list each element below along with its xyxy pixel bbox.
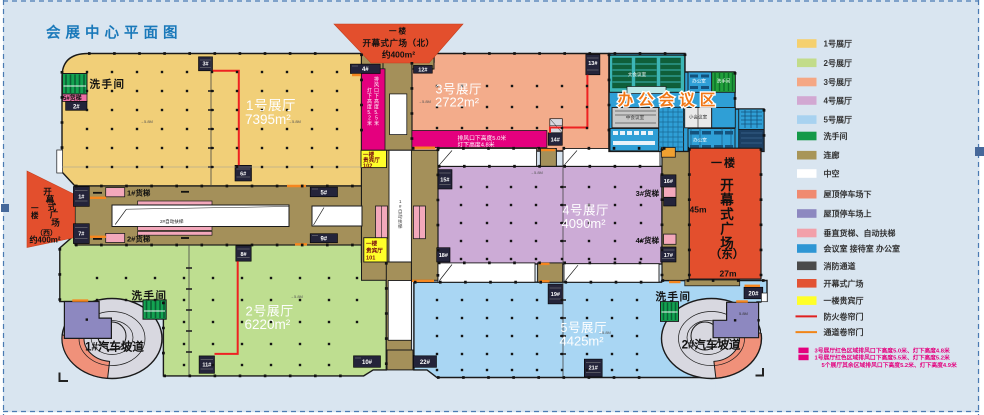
svg-text:→5.8M: →5.8M — [290, 294, 303, 299]
svg-text:4090m²: 4090m² — [562, 216, 607, 231]
svg-text:2722m²: 2722m² — [435, 95, 480, 110]
svg-text:6220m²: 6220m² — [245, 317, 291, 332]
svg-text:洗手间: 洗手间 — [132, 289, 168, 302]
svg-text:一楼贵宾厅: 一楼贵宾厅 — [824, 296, 864, 306]
svg-text:开: 开 — [720, 178, 734, 193]
svg-text:排风口下高度5.0米: 排风口下高度5.0米 — [458, 134, 507, 142]
svg-text:17#: 17# — [664, 253, 673, 259]
svg-text:一楼: 一楼 — [366, 239, 378, 247]
svg-text:12#: 12# — [418, 67, 427, 73]
svg-text:梯: 梯 — [398, 223, 403, 230]
svg-text:开幕式广场（北）: 开幕式广场（北） — [362, 38, 434, 48]
svg-text:13#: 13# — [588, 61, 597, 67]
svg-text:一楼: 一楼 — [389, 26, 408, 36]
svg-text:一楼: 一楼 — [711, 156, 737, 170]
svg-text:9#: 9# — [320, 237, 327, 243]
svg-text:10#: 10# — [362, 360, 373, 366]
svg-text:办公会议区: 办公会议区 — [618, 90, 721, 109]
svg-text:广: 广 — [720, 221, 734, 237]
svg-text:屋顶停车场下: 屋顶停车场下 — [824, 189, 872, 199]
svg-text:2#货梯: 2#货梯 — [127, 234, 151, 244]
svg-text:16#: 16# — [664, 179, 673, 185]
svg-text:垂直货梯、自动扶梯: 垂直货梯、自动扶梯 — [824, 228, 896, 238]
svg-text:约400m²: 约400m² — [382, 50, 415, 60]
svg-text:洗手间: 洗手间 — [824, 131, 848, 141]
svg-text:消防通道: 消防通道 — [824, 261, 856, 271]
svg-text:5#货梯: 5#货梯 — [63, 94, 82, 102]
svg-text:办公室: 办公室 — [692, 78, 706, 85]
svg-text:防火卷帘门: 防火卷帘门 — [824, 311, 864, 321]
svg-text:通道卷帘门: 通道卷帘门 — [824, 327, 864, 337]
svg-text:楼: 楼 — [31, 210, 39, 220]
svg-text:→5.8M: →5.8M — [530, 170, 543, 175]
svg-text:20#: 20# — [748, 292, 759, 298]
svg-text:1号展厅: 1号展厅 — [824, 40, 852, 49]
svg-text:5.8M: 5.8M — [739, 311, 748, 316]
svg-text:8#: 8# — [240, 252, 246, 258]
svg-text:4425m²: 4425m² — [560, 334, 605, 349]
svg-text:1号展厅: 1号展厅 — [246, 98, 296, 113]
svg-text:洗手间: 洗手间 — [717, 78, 731, 85]
svg-text:1#货梯: 1#货梯 — [127, 187, 151, 197]
svg-text:1#汽车坡道: 1#汽车坡道 — [85, 340, 144, 354]
svg-text:5号展厅: 5号展厅 — [824, 116, 852, 125]
svg-text:开幕式广场: 开幕式广场 — [824, 278, 864, 288]
svg-text:（东）: （东） — [710, 247, 745, 261]
svg-text:7395m²: 7395m² — [245, 112, 291, 127]
svg-text:3#货梯: 3#货梯 — [636, 188, 660, 198]
svg-text:大会议室: 大会议室 — [628, 71, 647, 78]
svg-text:洗手间: 洗手间 — [90, 78, 126, 91]
svg-text:→5.8M: →5.8M — [288, 119, 301, 124]
svg-text:连廊: 连廊 — [824, 150, 840, 160]
svg-text:11#: 11# — [202, 362, 211, 368]
svg-text:→5.8M: →5.8M — [140, 119, 153, 124]
svg-text:102: 102 — [363, 163, 372, 169]
svg-text:101: 101 — [366, 255, 375, 261]
svg-text:2#: 2# — [73, 104, 80, 110]
svg-text:14#: 14# — [551, 137, 560, 143]
svg-text:贵宾厅: 贵宾厅 — [366, 246, 383, 254]
svg-text:22#: 22# — [420, 360, 431, 366]
svg-text:→5.8M: →5.8M — [418, 99, 431, 104]
svg-text:3号展厅红色区域排风口下高度5.0米、灯下高度4.8米: 3号展厅红色区域排风口下高度5.0米、灯下高度4.8米 — [815, 347, 950, 355]
svg-text:4#: 4# — [362, 67, 369, 73]
svg-text:屋顶停车场上: 屋顶停车场上 — [824, 209, 872, 219]
svg-text:中会议室: 中会议室 — [626, 114, 645, 121]
svg-text:米: 米 — [374, 120, 379, 127]
svg-text:办公室: 办公室 — [693, 137, 707, 144]
svg-text:18#: 18# — [439, 253, 448, 259]
svg-text:3号展厅: 3号展厅 — [824, 78, 852, 87]
svg-text:1#: 1# — [78, 194, 84, 200]
svg-text:4#货梯: 4#货梯 — [636, 235, 660, 245]
svg-text:4号展厅: 4号展厅 — [824, 97, 852, 106]
svg-text:3#: 3# — [202, 62, 208, 68]
svg-text:15#: 15# — [440, 177, 449, 183]
svg-text:洗手间: 洗手间 — [656, 290, 692, 303]
svg-text:会议室 接待室 办公室: 会议室 接待室 办公室 — [824, 244, 900, 254]
svg-text:6#: 6# — [240, 171, 246, 177]
svg-text:7#: 7# — [78, 232, 84, 238]
svg-text:45m: 45m — [690, 205, 707, 215]
svg-text:2#自动扶梯: 2#自动扶梯 — [160, 218, 184, 225]
svg-text:5#: 5# — [320, 190, 327, 196]
svg-text:2#汽车坡道: 2#汽车坡道 — [682, 338, 741, 352]
svg-text:场: 场 — [51, 217, 60, 227]
svg-text:2号展厅: 2号展厅 — [824, 59, 852, 68]
svg-text:19#: 19# — [551, 292, 560, 298]
svg-text:灯下高度4.8米: 灯下高度4.8米 — [458, 140, 495, 148]
svg-text:幕: 幕 — [719, 192, 734, 208]
svg-text:21#: 21# — [589, 366, 598, 372]
svg-text:→5.8M: →5.8M — [598, 330, 611, 335]
svg-text:5个展厅其余区域排风口下高度5.2米、灯下高度4.9米: 5个展厅其余区域排风口下高度5.2米、灯下高度4.9米 — [822, 361, 957, 369]
svg-text:会展中心平面图: 会展中心平面图 — [46, 24, 183, 42]
svg-text:小会议室: 小会议室 — [689, 114, 708, 121]
svg-text:27m: 27m — [719, 269, 736, 279]
svg-text:约400m²: 约400m² — [29, 234, 60, 244]
svg-text:米: 米 — [367, 120, 372, 127]
svg-text:中空: 中空 — [824, 169, 840, 179]
svg-text:式: 式 — [720, 206, 734, 222]
svg-text:1号展厅红色区域排风口下高度5.5米、灯下高度5.2米: 1号展厅红色区域排风口下高度5.5米、灯下高度5.2米 — [815, 354, 950, 362]
